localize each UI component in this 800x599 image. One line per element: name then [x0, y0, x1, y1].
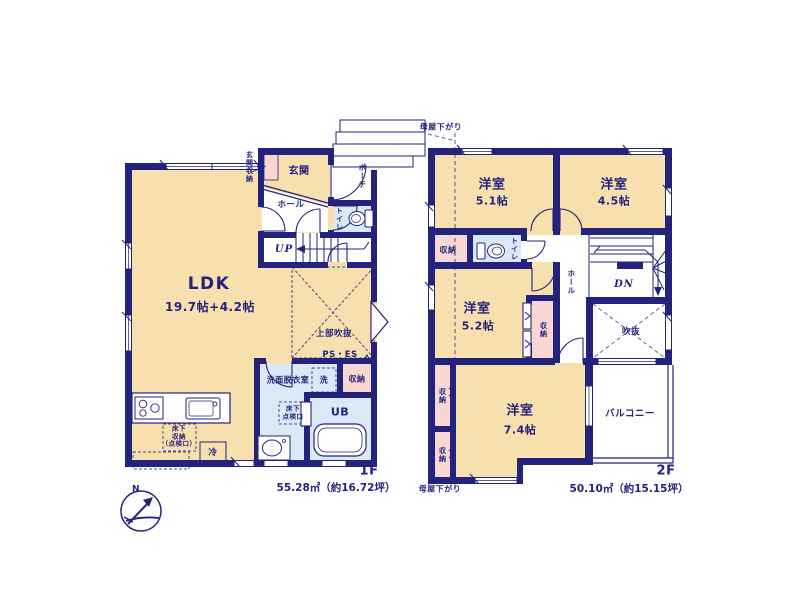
entrance-label: 玄関 — [289, 166, 310, 178]
compass-north-label: N — [132, 485, 140, 496]
stairs-up-label: UP — [275, 244, 293, 256]
toilet-icon-1f — [349, 210, 373, 227]
upper-void-label: 上部吹抜 — [316, 329, 352, 339]
eaves-slope-bottom-label: 母屋下がり — [419, 484, 462, 493]
void-label: 吹抜 — [622, 327, 640, 337]
room-5-2-size-label: 5.2帖 — [462, 321, 495, 334]
storage-label-1f: 収納 — [349, 374, 366, 383]
kitchen-counter-icon — [132, 393, 230, 423]
unit-bath-label: UB — [331, 407, 349, 420]
stairs-down-label: DN — [614, 279, 634, 291]
washbasin-icon — [258, 436, 290, 460]
compass-icon — [121, 491, 161, 531]
toilet-door-2f — [527, 241, 545, 259]
floor2-name-label: 2F — [657, 463, 676, 478]
washroom-label: 洗面脱衣室 — [267, 375, 310, 384]
floorplan-canvas: 玄関収納 玄関 ポーチ ホール トイレ UP LDK 19.7帖+4.2帖 上部… — [0, 0, 800, 599]
floor1-plan — [121, 120, 425, 531]
hall-label-1f: ホール — [277, 200, 304, 210]
floorplan-drawing — [0, 0, 800, 599]
balcony-label: バルコニー — [605, 408, 655, 419]
storage-mid-label: 収納 — [540, 322, 547, 338]
laundry-label: 洗 — [320, 375, 329, 384]
ldk-label: LDK — [188, 274, 231, 294]
underfloor-hatch-label: 床下 点検口 — [283, 405, 304, 420]
storage-w2-label: 収納 — [439, 447, 446, 463]
underfloor-storage-label: 床下 収納 （点検口） — [162, 426, 197, 449]
porch-label: ポーチ — [358, 163, 366, 189]
toilet-label-2f: トイレ — [511, 237, 518, 261]
storage-nw-label: 収納 — [440, 245, 457, 254]
room-4-5-size-label: 4.5帖 — [598, 196, 631, 209]
floor1-name-label: 1F — [360, 463, 379, 478]
storage-w1-label: 収納 — [439, 388, 446, 404]
room-7-4-size-label: 7.4帖 — [504, 425, 537, 438]
bay-window — [371, 302, 388, 342]
room-7-4-door — [558, 338, 583, 363]
eaves-slope-top-label: 母屋下がり — [420, 122, 463, 131]
toilet-icon-2f — [477, 243, 505, 259]
room-7-4-label: 洋室 — [506, 403, 533, 418]
porch-steps — [333, 120, 425, 167]
bathtub-icon — [314, 424, 366, 456]
room-5-2-label: 洋室 — [463, 301, 490, 316]
toilet-label-1f: トイレ — [336, 207, 343, 231]
room-4-5-label: 洋室 — [600, 177, 627, 192]
floor1-area-label: 55.28㎡（約16.72坪） — [277, 482, 396, 494]
floor2-area-label: 50.10㎡（約15.15坪） — [570, 483, 689, 495]
room-5-1-size-label: 5.1帖 — [476, 196, 509, 209]
entrance-storage-label: 玄関収納 — [246, 151, 253, 183]
hall-label-2f: ホール — [567, 269, 575, 295]
ldk-size-label: 19.7帖+4.2帖 — [165, 300, 255, 314]
stairs-down-arrow — [654, 287, 662, 296]
pipe-space-label: PS・ES — [322, 350, 357, 360]
refrigerator-label: 冷 — [208, 448, 217, 458]
room-5-1-label: 洋室 — [478, 177, 505, 192]
floor2-plan — [425, 133, 673, 487]
